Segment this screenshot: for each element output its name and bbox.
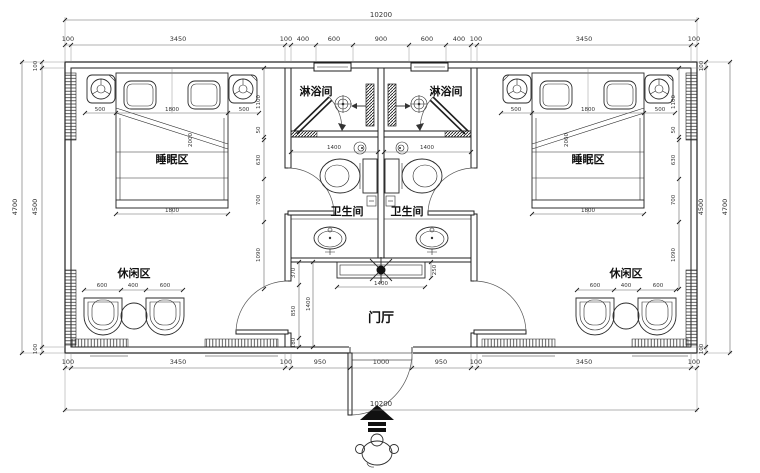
room-label-sleep-right: 睡眠区 bbox=[572, 152, 605, 166]
dim-right-wall-bottom: 100 bbox=[699, 343, 705, 354]
window-top-right bbox=[411, 63, 448, 71]
dim-left-wall-bottom: 100 bbox=[33, 343, 39, 354]
dim-top-total: 10200 bbox=[370, 11, 392, 19]
dim-bedR-side1: 500 bbox=[511, 107, 522, 113]
dim-left-inner: 4500 bbox=[31, 199, 39, 216]
shower-wall-panel-left bbox=[366, 84, 374, 126]
shower-door-track-right bbox=[445, 131, 471, 137]
dim-bottom-5: 950 bbox=[435, 358, 447, 366]
dim-bottom-2: 100 bbox=[280, 358, 292, 366]
window-left-bottom bbox=[65, 270, 76, 345]
dim-right-inner: 4500 bbox=[697, 199, 705, 216]
baseboard-right-2 bbox=[632, 339, 688, 347]
dim-bottom-8: 100 bbox=[688, 358, 700, 366]
dim-right-outer: 4700 bbox=[721, 199, 729, 216]
room-label-wc-right: 卫生间 bbox=[391, 204, 424, 218]
person-figure bbox=[356, 434, 399, 467]
dim-left-wall-top: 100 bbox=[33, 60, 39, 71]
dim-top-10: 100 bbox=[688, 35, 700, 43]
dim-hall-1: 850 bbox=[291, 305, 297, 316]
room-label-leisure-right: 休闲区 bbox=[609, 266, 643, 280]
room-label-shower-right: 淋浴间 bbox=[430, 84, 463, 98]
dim-bottom-0: 100 bbox=[62, 358, 74, 366]
dim-top-2: 100 bbox=[280, 35, 292, 43]
dim-cabinet-depth: 250 bbox=[432, 264, 438, 275]
shower-wall-panel-right bbox=[388, 84, 396, 126]
dim-bedR-side2: 500 bbox=[655, 107, 666, 113]
shower-door-track-left bbox=[291, 131, 317, 137]
entry-arrow-icon bbox=[360, 405, 394, 432]
dim-chainL-2: 630 bbox=[256, 154, 262, 165]
dim-top-4: 600 bbox=[328, 35, 340, 43]
baseboard-right-1 bbox=[482, 339, 555, 347]
dim-tableR: 400 bbox=[621, 283, 632, 289]
dim-chainL-4: 1090 bbox=[256, 248, 262, 262]
window-right-bottom bbox=[686, 270, 697, 345]
dim-bottom-total: 10200 bbox=[370, 400, 392, 408]
dim-bottom-4: 1000 bbox=[373, 358, 390, 366]
dim-bedR-foot: 1800 bbox=[581, 208, 595, 214]
dim-chainR-2: 630 bbox=[671, 154, 677, 165]
dim-hall-depth: 1400 bbox=[306, 297, 312, 311]
dim-bedR-length: 2000 bbox=[564, 133, 570, 147]
dim-chainL-3: 700 bbox=[256, 194, 262, 205]
room-label-sleep-left: 睡眠区 bbox=[156, 152, 189, 166]
room-label-hall: 门厅 bbox=[368, 310, 394, 326]
dim-top-3: 400 bbox=[297, 35, 309, 43]
dim-left-outer: 4700 bbox=[11, 199, 19, 216]
dim-chairR-1: 600 bbox=[590, 283, 601, 289]
dim-bottom-1: 3450 bbox=[170, 358, 187, 366]
window-right-top bbox=[686, 73, 697, 140]
dim-bedR-width: 1800 bbox=[581, 107, 595, 113]
dim-bath-width-left: 1400 bbox=[327, 145, 341, 151]
dim-top-5: 900 bbox=[375, 35, 387, 43]
window-left-top bbox=[65, 73, 76, 140]
window-top-left bbox=[314, 63, 351, 71]
dim-hall-0: 370 bbox=[291, 267, 297, 278]
dim-top-0: 100 bbox=[62, 35, 74, 43]
dim-bottom-3: 950 bbox=[314, 358, 326, 366]
dim-chairR-2: 600 bbox=[653, 283, 664, 289]
dim-chainR-1: 50 bbox=[671, 126, 677, 133]
dim-bath-width-right: 1400 bbox=[420, 145, 434, 151]
dim-bedL-side2: 500 bbox=[239, 107, 250, 113]
dim-tableL: 400 bbox=[128, 283, 139, 289]
baseboard-left-2 bbox=[205, 339, 278, 347]
dim-chainR-3: 700 bbox=[671, 194, 677, 205]
dim-top-8: 100 bbox=[470, 35, 482, 43]
dim-top-9: 3450 bbox=[576, 35, 593, 43]
room-label-wc-left: 卫生间 bbox=[331, 204, 364, 218]
room-label-leisure-left: 休闲区 bbox=[117, 266, 151, 280]
dim-cabinet-width: 1400 bbox=[374, 281, 388, 287]
dim-bedL-foot: 1800 bbox=[165, 208, 179, 214]
dim-chainL-1: 50 bbox=[256, 126, 262, 133]
room-label-shower-left: 淋浴间 bbox=[300, 84, 333, 98]
baseboard-left-1 bbox=[72, 339, 128, 347]
dim-bottom-7: 3450 bbox=[576, 358, 593, 366]
floor-plan-page: 10200 100 3450 100 400 600 900 600 400 1… bbox=[0, 0, 760, 473]
dim-bedL-width: 1800 bbox=[165, 107, 179, 113]
dim-top-7: 400 bbox=[453, 35, 465, 43]
dim-bedL-side1: 500 bbox=[95, 107, 106, 113]
dim-top-1: 3450 bbox=[170, 35, 187, 43]
dim-chainR-0: 1100 bbox=[671, 95, 677, 109]
dim-chainR-4: 1090 bbox=[671, 248, 677, 262]
dim-bottom-6: 100 bbox=[470, 358, 482, 366]
dim-chairL-1: 600 bbox=[97, 283, 108, 289]
dim-right-wall-top: 100 bbox=[699, 60, 705, 71]
dim-hall-2: 180 bbox=[291, 337, 297, 348]
dim-chairL-2: 600 bbox=[160, 283, 171, 289]
dim-chainL-0: 1100 bbox=[256, 95, 262, 109]
floor-plan-canvas: 10200 100 3450 100 400 600 900 600 400 1… bbox=[0, 0, 760, 473]
dim-bedL-length: 2000 bbox=[188, 133, 194, 147]
dim-top-6: 600 bbox=[421, 35, 433, 43]
